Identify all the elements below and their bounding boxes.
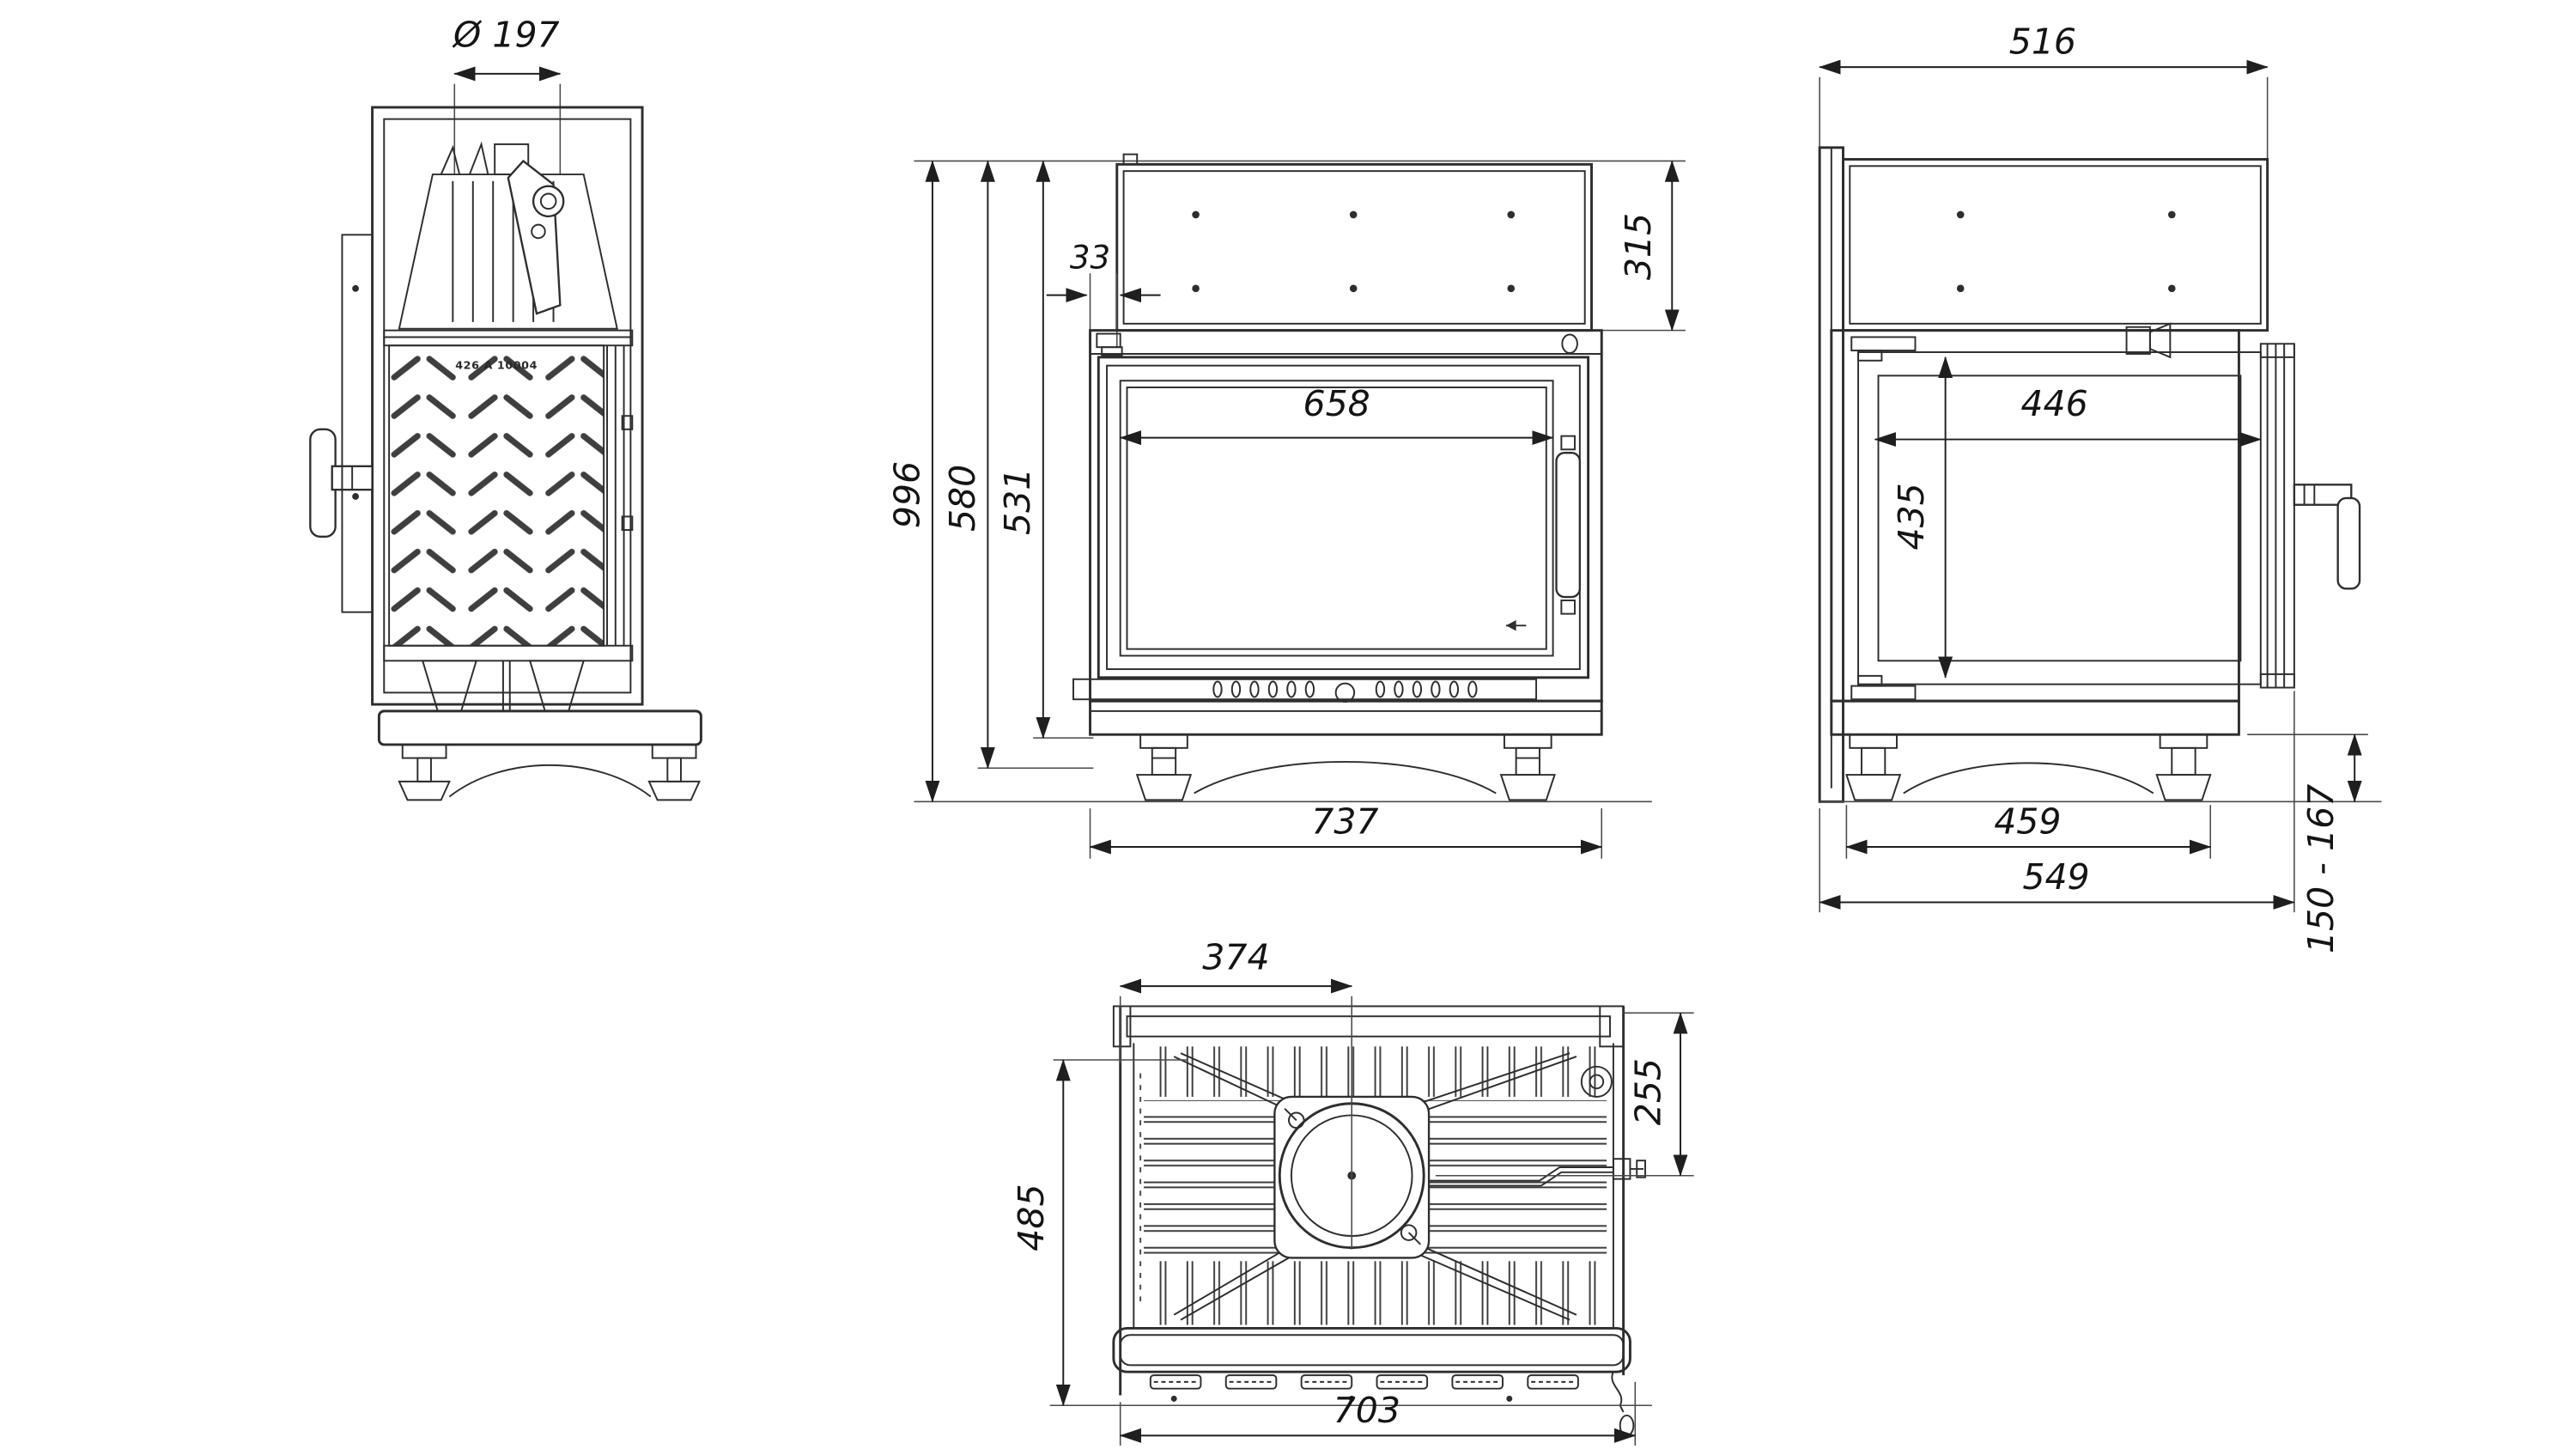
screw-hole-dot xyxy=(1192,285,1200,293)
overall-height-label: 996 xyxy=(886,461,927,528)
top-body xyxy=(1050,1007,1652,1436)
side-top-panel xyxy=(1843,159,2267,356)
glass-width-label: 658 xyxy=(1303,383,1370,424)
right-base xyxy=(1832,701,2239,800)
door-cap xyxy=(2261,674,2294,688)
dim-glass-width: 658 xyxy=(1121,383,1553,437)
dim-overall-height: 996 xyxy=(886,161,933,801)
front-view: 33 315 xyxy=(886,155,1686,859)
latch-detail xyxy=(1851,337,1915,350)
fireplace-dimension-drawing: Ø 197 xyxy=(0,0,2576,1449)
feet-span-label: 459 xyxy=(1994,801,2061,842)
dim-panel-depth: 516 xyxy=(1820,21,2267,164)
foot-height-label: 150 - 167 xyxy=(2300,784,2342,953)
base-arch xyxy=(449,765,650,797)
screw-hole-dot xyxy=(2168,285,2176,293)
dim-feet-span: 459 xyxy=(1846,801,2210,858)
screw-hole-dot xyxy=(1350,285,1358,293)
adjustable-foot xyxy=(2157,734,2211,800)
damper-assembly xyxy=(399,144,617,329)
fin-band xyxy=(1147,1261,1603,1324)
front-base xyxy=(1091,701,1602,800)
glass-depth-label: 446 xyxy=(2020,383,2087,424)
flue-from-back-label: 255 xyxy=(1628,1058,1669,1125)
rear-flange xyxy=(342,234,372,612)
dim-front-width: 703 xyxy=(1121,1382,1636,1446)
right-side-view: 516 xyxy=(1820,21,2381,953)
adjustable-foot xyxy=(1846,734,1900,800)
base-arch xyxy=(1904,763,2154,793)
pull-ring xyxy=(1620,1416,1634,1435)
body-depth-label: 485 xyxy=(1011,1184,1052,1251)
flue-diameter-label: Ø 197 xyxy=(452,15,560,56)
adjustable-foot xyxy=(1137,734,1191,800)
damper-pivot-bolt xyxy=(533,186,563,216)
door-height-label: 435 xyxy=(1891,483,1932,550)
panel-height-label: 315 xyxy=(1618,213,1659,280)
front-width-label: 703 xyxy=(1334,1390,1400,1431)
lower-rail xyxy=(384,646,632,711)
herringbone-panel: 426 A 10004 xyxy=(389,345,604,646)
pull-chain xyxy=(1612,1372,1633,1435)
latch-detail xyxy=(1851,686,1915,700)
lock-hole xyxy=(1562,335,1577,353)
dim-panel-height: 315 xyxy=(1596,161,1686,330)
door-cap xyxy=(2261,344,2294,357)
brand-arrow-icon xyxy=(1506,620,1526,630)
casing-height-label: 580 xyxy=(942,465,983,532)
screw-hole-dot xyxy=(1507,211,1515,219)
damper-ear-icon xyxy=(470,144,488,174)
glass xyxy=(1127,387,1546,649)
side-view: Ø 197 xyxy=(310,15,701,801)
dim-foot-height: 150 - 167 xyxy=(2247,734,2368,953)
base-arch xyxy=(1194,762,1497,794)
adjustable-foot xyxy=(1501,734,1555,800)
screw-hole-dot xyxy=(1192,211,1200,219)
firebox-height-label: 531 xyxy=(997,468,1038,535)
top-view: 374 255 485 703 xyxy=(1011,937,1694,1446)
screw-hole-dot xyxy=(1507,285,1515,293)
dim-glass-depth: 446 xyxy=(1875,383,2261,439)
air-grill xyxy=(1073,679,1536,702)
adjustable-foot xyxy=(399,745,450,800)
panel-offset-label: 33 xyxy=(1070,239,1110,276)
panel-depth-label: 516 xyxy=(2009,21,2076,62)
door-handle-right xyxy=(2294,484,2360,588)
dim-door-height: 435 xyxy=(1891,357,1945,678)
door-handle xyxy=(1557,436,1580,614)
dim-flue-diameter: Ø 197 xyxy=(452,15,560,174)
screw-hole-dot xyxy=(1957,211,1965,219)
base-assembly xyxy=(379,711,701,800)
upper-rail xyxy=(384,331,632,346)
flue-from-left-label: 374 xyxy=(1202,937,1269,978)
screw-hole-dot xyxy=(2168,211,2176,219)
technical-drawing-page: Ø 197 xyxy=(0,0,2576,1449)
hinge-strip xyxy=(607,345,632,646)
dim-overall-width: 737 xyxy=(1091,801,1602,858)
back-shield-panel xyxy=(1117,155,1592,331)
screw-hole-dot xyxy=(1350,211,1358,219)
adjustable-foot xyxy=(649,745,700,800)
screw-hole-dot xyxy=(1957,285,1965,293)
overall-width-label: 737 xyxy=(1311,801,1378,842)
overall-depth-label: 549 xyxy=(2022,856,2089,898)
part-number-label: 426 A 10004 xyxy=(455,359,538,372)
back-rail xyxy=(1127,1016,1611,1036)
damper-ear-icon xyxy=(441,148,459,174)
